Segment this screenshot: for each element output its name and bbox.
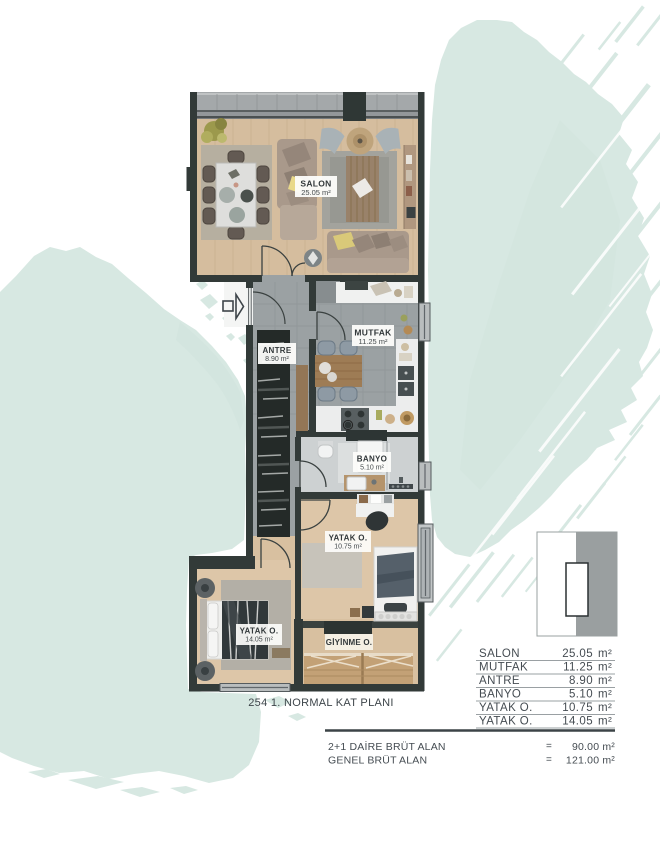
svg-text:YATAK O.: YATAK O. bbox=[329, 534, 368, 543]
svg-text:90.00 m²: 90.00 m² bbox=[572, 741, 615, 753]
svg-text:25.05: 25.05 bbox=[562, 648, 593, 660]
svg-text:MUTFAK: MUTFAK bbox=[354, 328, 392, 338]
svg-text:m²: m² bbox=[598, 662, 612, 674]
svg-text:YATAK O.: YATAK O. bbox=[479, 716, 533, 728]
svg-text:11.25: 11.25 bbox=[563, 662, 593, 674]
svg-text:SALON: SALON bbox=[479, 648, 520, 660]
svg-text:YATAK O.: YATAK O. bbox=[479, 702, 533, 714]
svg-text:BANYO: BANYO bbox=[479, 689, 521, 701]
svg-text:=: = bbox=[546, 741, 552, 752]
svg-text:254 1. NORMAL KAT PLANI: 254 1. NORMAL KAT PLANI bbox=[248, 697, 393, 709]
svg-text:5.10: 5.10 bbox=[569, 689, 593, 701]
svg-text:MUTFAK: MUTFAK bbox=[479, 662, 528, 674]
svg-text:11.25 m²: 11.25 m² bbox=[358, 337, 388, 346]
svg-text:ANTRE: ANTRE bbox=[262, 346, 291, 355]
svg-text:m²: m² bbox=[598, 648, 612, 660]
svg-text:10.75: 10.75 bbox=[562, 702, 593, 714]
svg-text:8.90: 8.90 bbox=[569, 675, 593, 687]
svg-text:SALON: SALON bbox=[300, 179, 331, 189]
svg-text:BANYO: BANYO bbox=[357, 455, 387, 464]
svg-text:14.05 m²: 14.05 m² bbox=[245, 637, 273, 644]
svg-text:YATAK O.: YATAK O. bbox=[240, 627, 279, 636]
svg-text:m²: m² bbox=[598, 702, 612, 714]
svg-text:GENEL BRÜT ALAN: GENEL BRÜT ALAN bbox=[328, 755, 427, 767]
svg-text:121.00 m²: 121.00 m² bbox=[566, 755, 615, 767]
svg-text:=: = bbox=[546, 755, 552, 766]
svg-text:25.05 m²: 25.05 m² bbox=[301, 188, 331, 197]
svg-text:5.10 m²: 5.10 m² bbox=[360, 465, 384, 472]
svg-text:8.90 m²: 8.90 m² bbox=[265, 356, 289, 363]
svg-text:GİYİNME O.: GİYİNME O. bbox=[326, 638, 372, 647]
svg-text:m²: m² bbox=[598, 716, 612, 728]
svg-text:2+1 DAİRE BRÜT ALAN: 2+1 DAİRE BRÜT ALAN bbox=[328, 740, 446, 753]
svg-text:m²: m² bbox=[598, 675, 612, 687]
svg-text:m²: m² bbox=[598, 689, 612, 701]
svg-text:ANTRE: ANTRE bbox=[479, 675, 520, 687]
svg-text:14.05: 14.05 bbox=[562, 716, 593, 728]
svg-text:10.75 m²: 10.75 m² bbox=[334, 544, 362, 551]
